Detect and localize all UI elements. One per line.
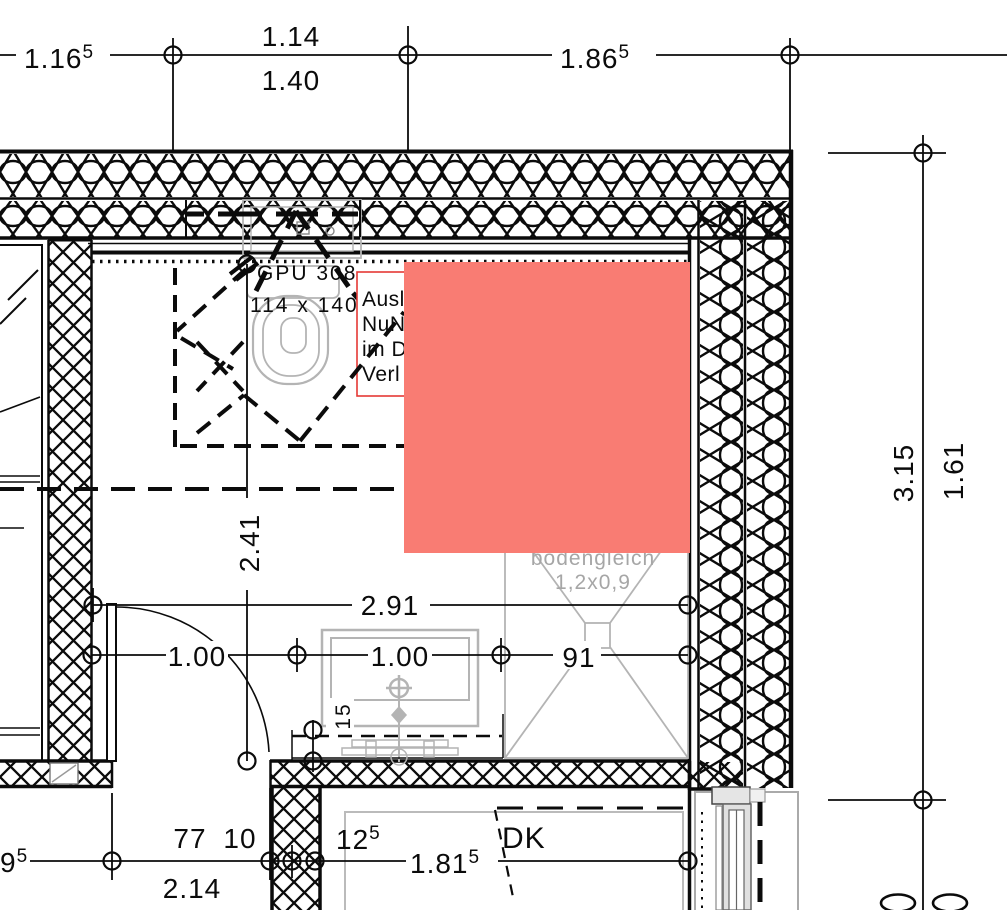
dk-label: DK bbox=[502, 822, 546, 855]
annotation-line-1: Ausl bbox=[362, 288, 405, 311]
floor-plan-canvas: bodengleich 1,2x0,9 DK bbox=[0, 0, 1007, 910]
right-wall bbox=[690, 150, 794, 798]
shower-label-line2: 1,2x0,9 bbox=[555, 571, 631, 594]
dim-seg-10: 10 bbox=[223, 823, 256, 854]
right-dimension-chain bbox=[828, 135, 946, 910]
annotation-line-4: Verl bbox=[362, 363, 400, 386]
dim-top-right: 1.865 bbox=[560, 42, 630, 74]
floor-plan-page: bodengleich 1,2x0,9 DK bbox=[0, 0, 1007, 910]
dim-seg-right: 91 bbox=[562, 642, 595, 673]
dim-pier: 125 bbox=[336, 823, 381, 855]
dim-room-width: 2.91 bbox=[361, 590, 420, 621]
dim-seg-left: 1.00 bbox=[168, 641, 227, 672]
top-wall bbox=[0, 152, 793, 262]
roof-window-code-label: GPU 308 bbox=[257, 262, 357, 285]
roof-window-size-label: 114 x 140 bbox=[250, 294, 359, 317]
dim-vanity-depth: 15 bbox=[332, 702, 355, 729]
dim-total-214: 2.14 bbox=[163, 873, 222, 904]
highlight-overlay[interactable] bbox=[404, 262, 690, 553]
top-dimension-chain bbox=[0, 26, 1007, 151]
dim-seg-center: 1.00 bbox=[371, 641, 430, 672]
adjacent-room-left bbox=[0, 245, 42, 760]
dim-dk-width: 1.815 bbox=[410, 847, 480, 879]
dim-top-mid-above: 1.14 bbox=[262, 21, 321, 52]
dim-room-depth: 2.41 bbox=[234, 514, 265, 573]
left-wall bbox=[48, 240, 92, 761]
annotation-line-2: NuN bbox=[362, 313, 406, 336]
rotated-zero-right bbox=[933, 895, 967, 910]
dim-seg-77: 77 bbox=[173, 823, 206, 854]
door bbox=[107, 604, 269, 761]
dim-bottom-left-cut: 95 bbox=[0, 846, 28, 878]
dim-top-mid-below: 1.40 bbox=[262, 65, 321, 96]
dim-right-outer: 3.15 bbox=[888, 444, 919, 503]
rotated-zero-left bbox=[881, 895, 915, 910]
rotated-zero-digits bbox=[881, 895, 967, 910]
dim-right-inner: 1.61 bbox=[938, 442, 969, 501]
dim-top-left: 1.165 bbox=[24, 42, 94, 74]
